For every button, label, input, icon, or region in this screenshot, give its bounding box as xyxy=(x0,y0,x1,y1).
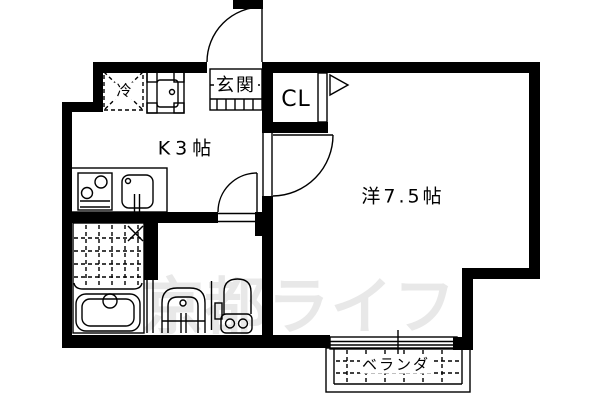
wall-kitchen-bottom xyxy=(62,212,218,223)
veranda-label: ベランダ xyxy=(360,357,432,374)
thin-partition xyxy=(147,278,153,333)
closet-label: CL xyxy=(281,89,311,111)
wall-door-pillar xyxy=(255,212,273,236)
kitchen-label: K3帖 xyxy=(158,140,217,159)
toilet xyxy=(215,279,252,333)
western-room-label: 洋7.5帖 xyxy=(361,188,444,207)
washing-machine-icon xyxy=(147,72,184,113)
refrigerator-label: 冷 xyxy=(114,83,133,100)
wall-top-right xyxy=(262,62,540,73)
floor-plan: 京都ライフ xyxy=(0,0,600,400)
closet-folding-door xyxy=(318,73,348,122)
wall-bath-washroom xyxy=(144,212,158,280)
wall-window-stub xyxy=(453,337,472,350)
bathroom xyxy=(73,223,144,333)
wall-top-left xyxy=(93,62,207,73)
kitchen-counter xyxy=(71,168,167,216)
stove-burner xyxy=(95,176,107,188)
entrance-label: 玄関 xyxy=(214,76,258,96)
entrance-door xyxy=(207,7,262,62)
wall-bottom xyxy=(62,335,330,348)
room-door xyxy=(263,133,333,196)
sliding-window xyxy=(330,330,457,354)
shower-floor-grid xyxy=(74,225,142,287)
shower-pan-edge xyxy=(74,283,142,289)
wall-right xyxy=(529,62,540,279)
washroom-door xyxy=(218,173,257,222)
wall-cl-bottom xyxy=(262,122,328,133)
wall-bottom-right-h xyxy=(462,268,540,279)
washbasin xyxy=(162,288,205,333)
kitchen-sink xyxy=(122,175,153,208)
wall-left xyxy=(62,102,72,348)
wall-door-top-stub xyxy=(233,0,263,9)
stove-burner xyxy=(82,188,93,199)
